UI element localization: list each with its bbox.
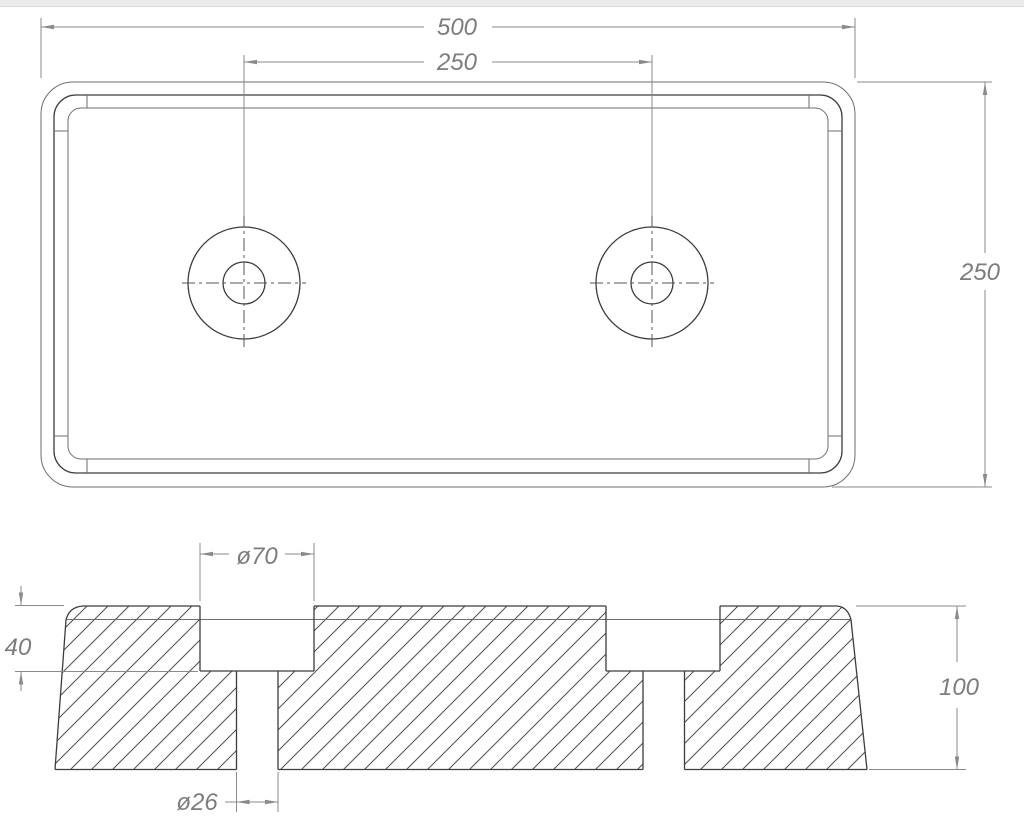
right-hole-void [643,671,685,771]
dim-overall-height-label: 100 [939,674,980,701]
left-counterbore-void [200,605,314,672]
left-hole-void [237,671,279,771]
section-view [55,605,867,772]
outer-contour [41,82,855,487]
dim-counterbore-diameter-label: ø70 [236,543,278,570]
dim-counterbore-depth-label: 40 [5,634,32,661]
technical-drawing: 500 250 250 ø70 40 [0,0,1024,829]
top-view [41,82,855,487]
dim-overall-depth: 250 [832,82,1001,487]
dim-hole-spacing-label: 250 [436,49,478,76]
dim-overall-height: 100 [856,606,980,770]
dim-hole-spacing: 250 [244,49,652,216]
drawing-page: 500 250 250 ø70 40 [0,0,1024,829]
dim-overall-depth-label: 250 [959,259,1001,286]
hatch-fill [55,606,867,770]
corner-tangent-ticks [54,95,842,473]
top-face-contour [54,95,842,473]
dim-hole-diameter-label: ø26 [176,789,218,816]
dim-counterbore-diameter: ø70 [200,543,314,601]
dim-hole-diameter: ø26 [176,772,278,816]
dim-overall-width-label: 500 [437,14,478,41]
right-counterbore-void [606,605,720,672]
